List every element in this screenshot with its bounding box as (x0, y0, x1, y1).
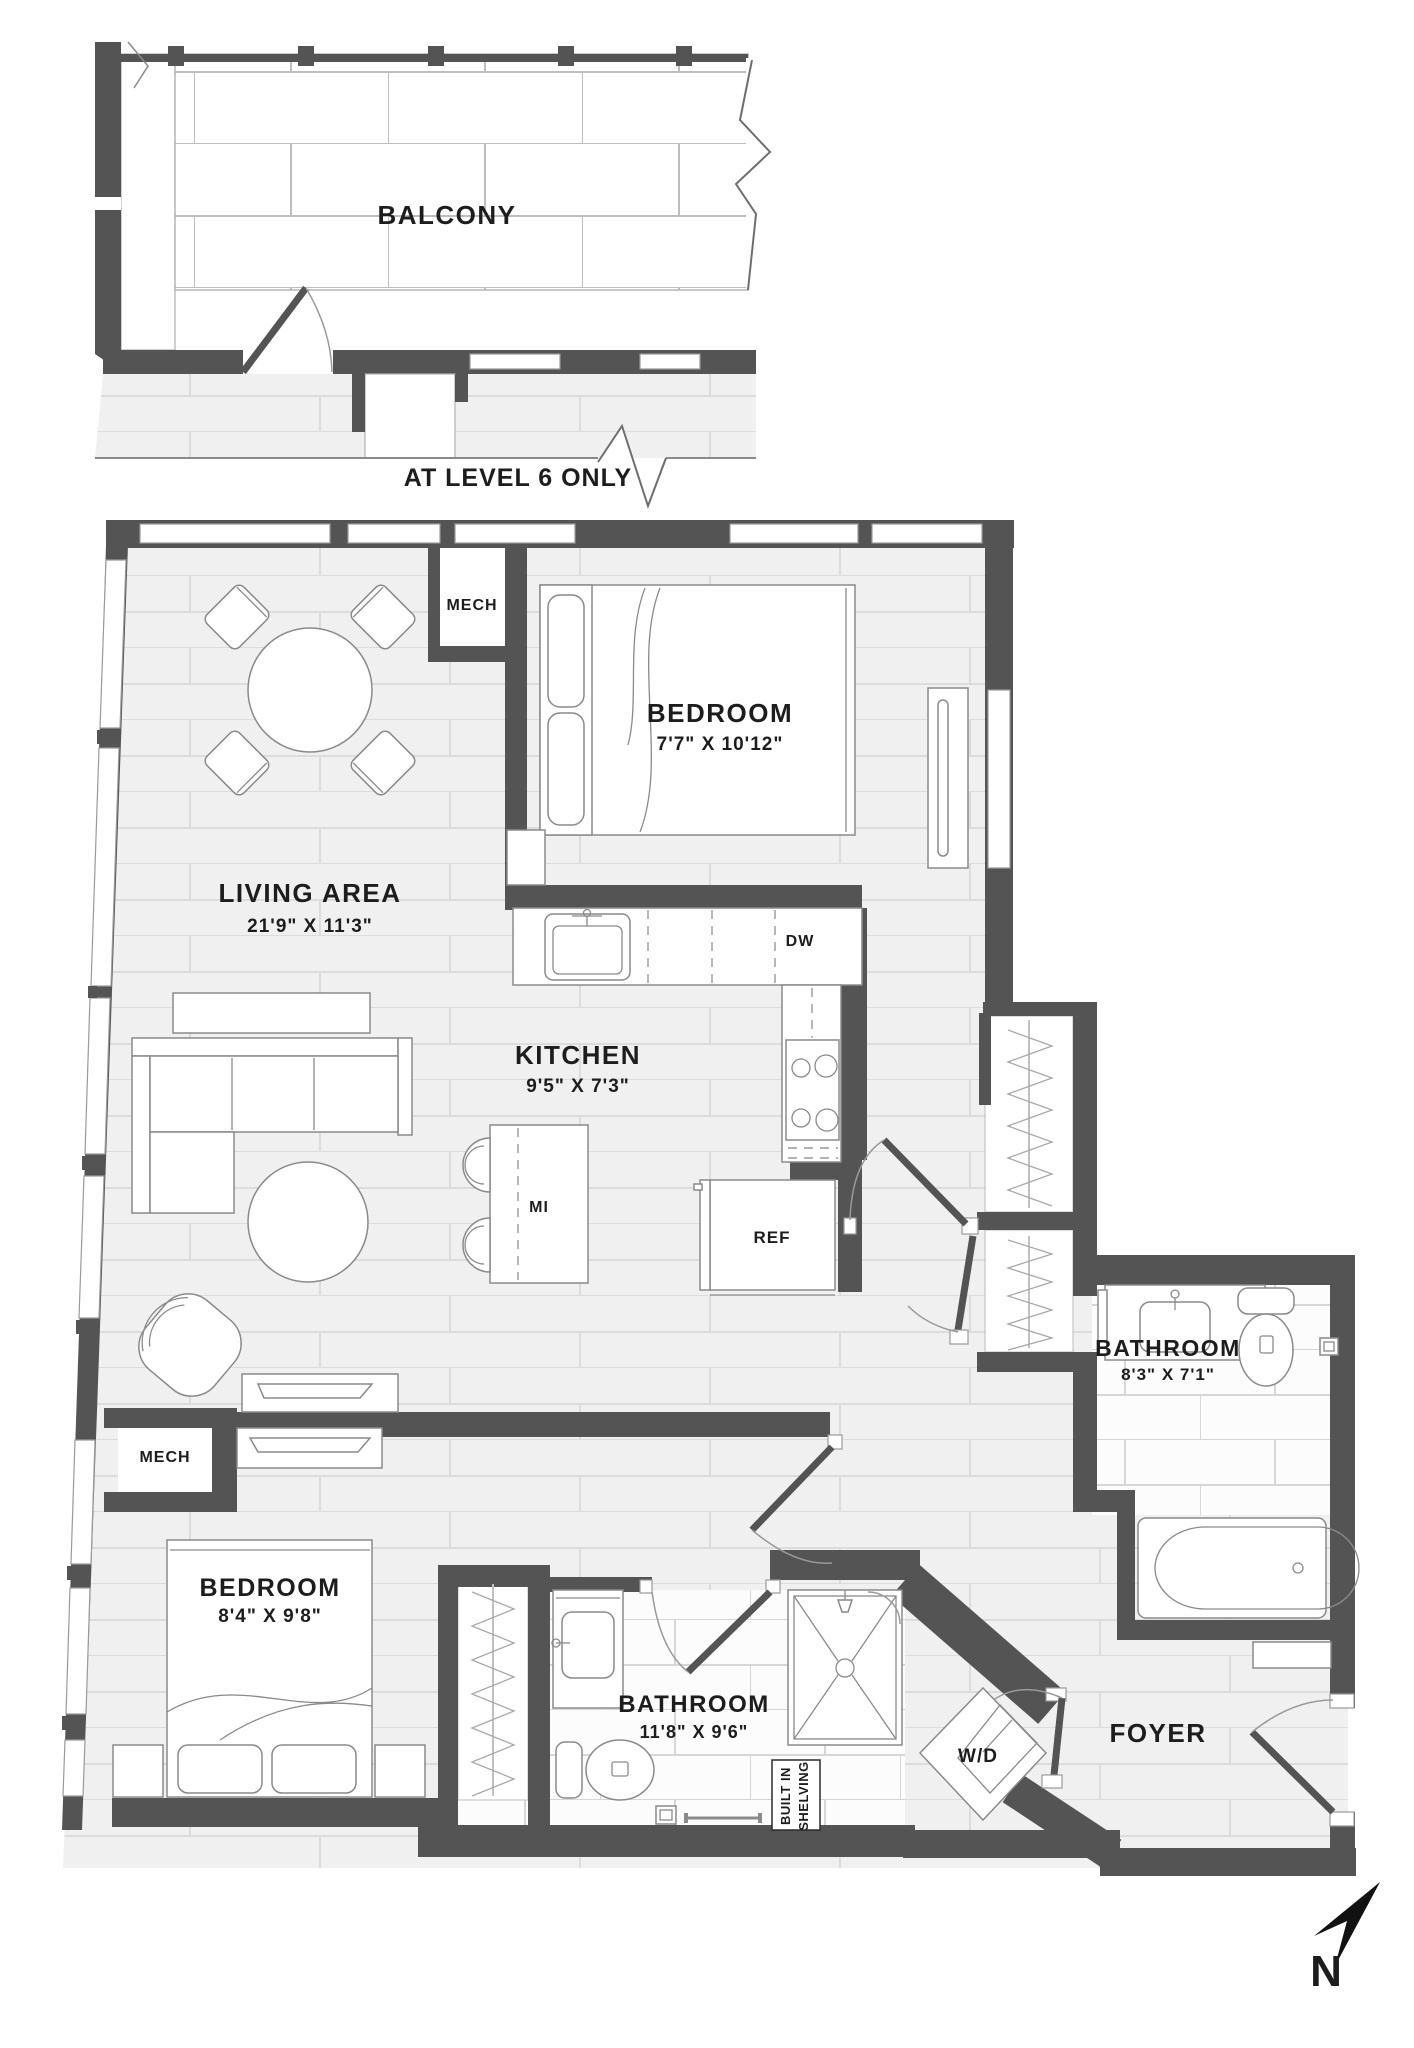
mech2-bottom-wall (104, 1492, 237, 1512)
bedroom2-label: BEDROOM 8'4" X 9'8" (199, 1574, 340, 1627)
bedroom2-nightstand-1 (113, 1745, 163, 1797)
closet3-left-wall (438, 1565, 458, 1827)
closet2-bottom-wall (977, 1352, 1097, 1372)
bathroom1-top-wall (1090, 1255, 1355, 1285)
balcony-section: BALCONY AT LEVEL 6 ONLY (95, 42, 770, 506)
landing-wall-left (352, 374, 365, 432)
bathroom2-bottom-wall (418, 1825, 915, 1857)
svg-text:KITCHEN: KITCHEN (515, 1040, 641, 1070)
bathtub (1138, 1518, 1359, 1618)
tub-left-wall (1117, 1505, 1135, 1640)
mech2-label: MECH (139, 1449, 190, 1466)
toilet-paper-holder (1320, 1338, 1338, 1355)
closet-divider-wall (977, 1212, 1073, 1230)
balcony-walk-strip (121, 54, 175, 350)
fridge-jog-wall (790, 1162, 838, 1180)
dishwasher-label: DW (786, 933, 815, 950)
kitchen-top-wall (505, 885, 862, 910)
floor-plan-page: BALCONY AT LEVEL 6 ONLY (0, 0, 1414, 2048)
foyer-shelf (1253, 1642, 1331, 1668)
balcony-label: BALCONY (377, 200, 516, 230)
svg-text:BATHROOM: BATHROOM (1095, 1335, 1241, 1361)
top-window-2 (348, 524, 440, 543)
svg-text:7'7" X 10'12": 7'7" X 10'12" (657, 734, 784, 755)
dining-table (248, 628, 372, 752)
bed2-pillow-1 (178, 1745, 262, 1793)
foyer-bottom-wall (1100, 1848, 1356, 1876)
fridge-label: REF (754, 1228, 791, 1247)
console-table (173, 993, 370, 1033)
media-console (242, 1374, 398, 1412)
closet1-stub-wall (979, 1013, 991, 1105)
top-window-4 (730, 524, 858, 543)
bedroom1-nightstand (507, 830, 545, 885)
svg-text:BUILT IN: BUILT IN (778, 1767, 793, 1825)
bedroom1-label: BEDROOM 7'7" X 10'12" (647, 698, 793, 755)
svg-text:LIVING AREA: LIVING AREA (218, 878, 401, 908)
svg-text:11'8" X 9'6": 11'8" X 9'6" (640, 1722, 749, 1742)
bedroom1-window (988, 690, 1010, 868)
balcony-bottom-wall-left (103, 350, 243, 374)
shower (788, 1590, 902, 1745)
bedroom1-wardrobe-door (938, 700, 948, 856)
tub-jog-wall (1073, 1490, 1135, 1512)
balcony-tile-floor (175, 54, 748, 290)
level6-note: AT LEVEL 6 ONLY (404, 464, 632, 492)
landing-wall-right (455, 374, 468, 402)
wall-closet-right-upper (1073, 1016, 1097, 1296)
bed1-pillow-1 (548, 595, 584, 707)
bathroom2-vanity (552, 1590, 623, 1708)
svg-text:BEDROOM: BEDROOM (199, 1574, 340, 1602)
left-window-5 (71, 1440, 95, 1564)
mech1-left-wall (428, 548, 440, 652)
balcony-door-landing (365, 374, 455, 458)
balcony-bottom-window-2 (640, 354, 700, 369)
bathroom1-toilet (1238, 1288, 1294, 1386)
tub-bottom-wall (1117, 1620, 1333, 1640)
coffee-table (248, 1162, 368, 1282)
floor-plan: BALCONY AT LEVEL 6 ONLY (0, 0, 1414, 2048)
washer-dryer-label: W/D (958, 1746, 998, 1767)
balcony-bottom-window-1 (470, 354, 560, 369)
svg-text:21'9" X 11'3": 21'9" X 11'3" (247, 916, 373, 937)
left-window-3 (85, 998, 110, 1154)
balcony-left-wall-break (95, 197, 121, 210)
shower-top-wall (770, 1550, 920, 1580)
kitchen-label: KITCHEN 9'5" X 7'3" (515, 1040, 641, 1097)
balcony-right-mask (746, 58, 768, 288)
foyer-label: FOYER (1109, 1718, 1206, 1748)
built-in-shelving-label: BUILT IN SHELVING (772, 1760, 820, 1831)
top-window-5 (872, 524, 982, 543)
top-window-3 (455, 524, 575, 543)
mech1-label: MECH (446, 597, 497, 614)
nook-bottom-wall (903, 1830, 1120, 1858)
left-window-4 (79, 1176, 104, 1318)
left-window-6 (66, 1588, 90, 1714)
bathroom2-label: BATHROOM 11'8" X 9'6" (618, 1691, 770, 1742)
svg-text:9'5" X 7'3": 9'5" X 7'3" (526, 1076, 630, 1097)
island-label: MI (529, 1199, 549, 1216)
svg-text:BATHROOM: BATHROOM (618, 1691, 770, 1718)
svg-text:BEDROOM: BEDROOM (647, 698, 793, 728)
svg-text:8'3" X 7'1": 8'3" X 7'1" (1121, 1365, 1215, 1384)
svg-text:8'4" X 9'8": 8'4" X 9'8" (218, 1606, 322, 1627)
svg-text:SHELVING: SHELVING (796, 1761, 811, 1831)
bedroom2-nightstand-2 (375, 1745, 425, 1797)
top-window-1 (140, 524, 330, 543)
stove (786, 1040, 839, 1140)
wall-closet-top (983, 1002, 1097, 1016)
bed1-pillow-2 (548, 713, 584, 825)
bedroom2-bottom-wall (112, 1798, 442, 1827)
bedroom2-dresser (237, 1428, 382, 1468)
left-window-7 (63, 1740, 85, 1796)
mech1-bottom-wall (428, 646, 517, 662)
bed2-pillow-2 (272, 1745, 356, 1793)
bathroom2-toilet (556, 1740, 654, 1800)
closet3-right-wall (528, 1565, 550, 1830)
north-label: N (1310, 1947, 1342, 1996)
